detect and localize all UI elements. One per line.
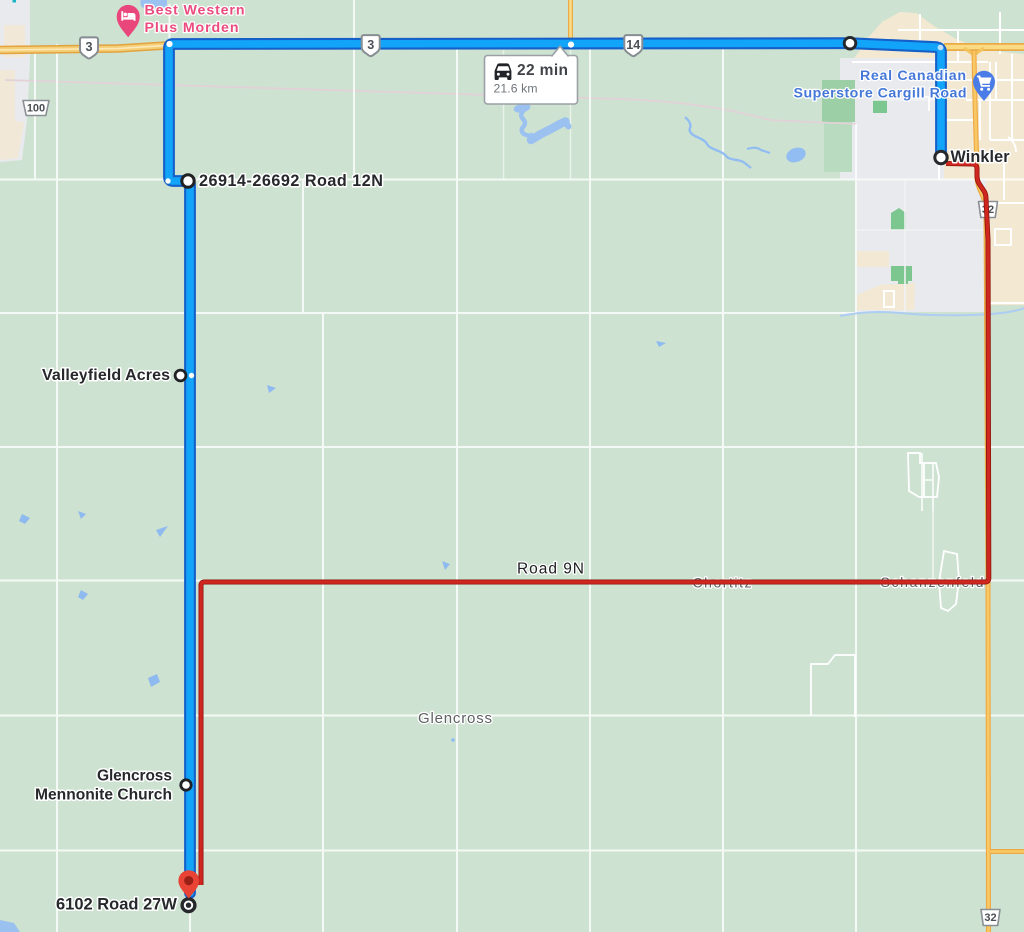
svg-text:3: 3 xyxy=(85,40,92,54)
svg-text:Superstore Cargill Road: Superstore Cargill Road xyxy=(794,86,967,102)
svg-text:Plus Morden: Plus Morden xyxy=(145,20,239,36)
svg-text:32: 32 xyxy=(984,912,996,924)
svg-text:14: 14 xyxy=(626,38,640,52)
svg-text:Real Canadian: Real Canadian xyxy=(860,68,966,84)
svg-text:6102 Road 27W: 6102 Road 27W xyxy=(56,896,177,914)
svg-text:Glencross: Glencross xyxy=(418,710,492,727)
svg-text:Glencross: Glencross xyxy=(97,768,172,785)
svg-text:21.6 km: 21.6 km xyxy=(494,82,538,96)
svg-text:26914-26692 Road 12N: 26914-26692 Road 12N xyxy=(199,172,383,190)
svg-text:Winkler: Winkler xyxy=(951,148,1011,166)
svg-text:22 min: 22 min xyxy=(517,62,568,79)
svg-text:Valleyfield Acres: Valleyfield Acres xyxy=(42,367,170,384)
svg-text:Road 9N: Road 9N xyxy=(517,561,584,578)
svg-text:3: 3 xyxy=(367,38,374,52)
svg-text:100: 100 xyxy=(27,103,45,115)
svg-text:Mennonite Church: Mennonite Church xyxy=(35,787,172,804)
svg-text:Best Western: Best Western xyxy=(145,3,245,19)
